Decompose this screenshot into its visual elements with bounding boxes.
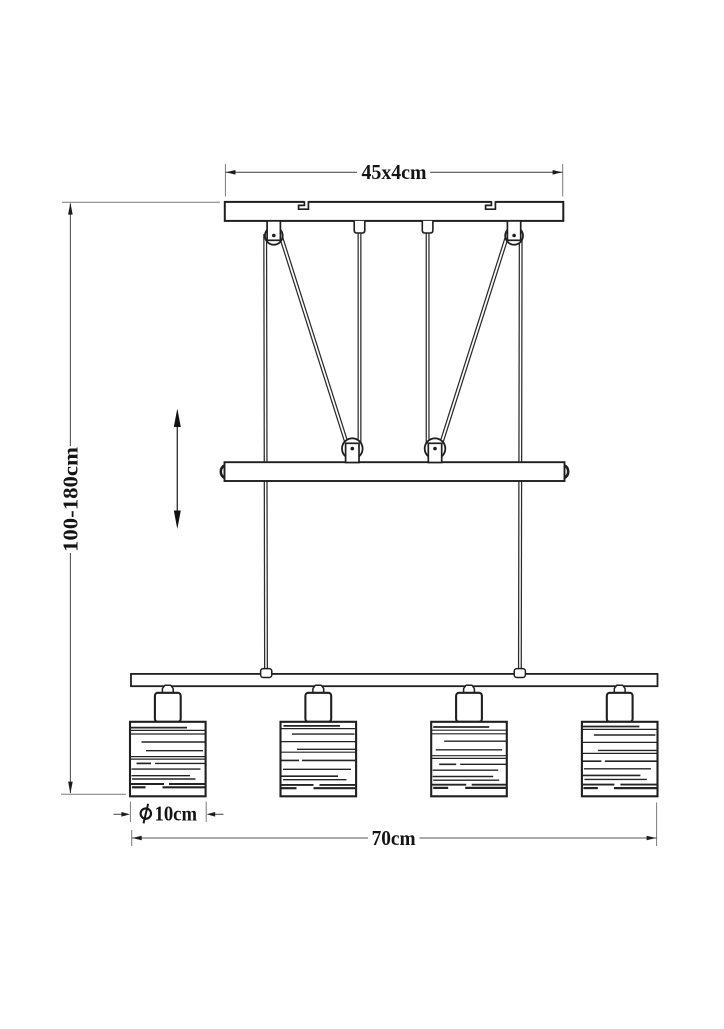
svg-text:100-180cm: 100-180cm [58,447,82,552]
svg-text:10cm: 10cm [155,802,198,826]
svg-text:45x4cm: 45x4cm [362,160,427,184]
svg-text:70cm: 70cm [372,826,416,850]
